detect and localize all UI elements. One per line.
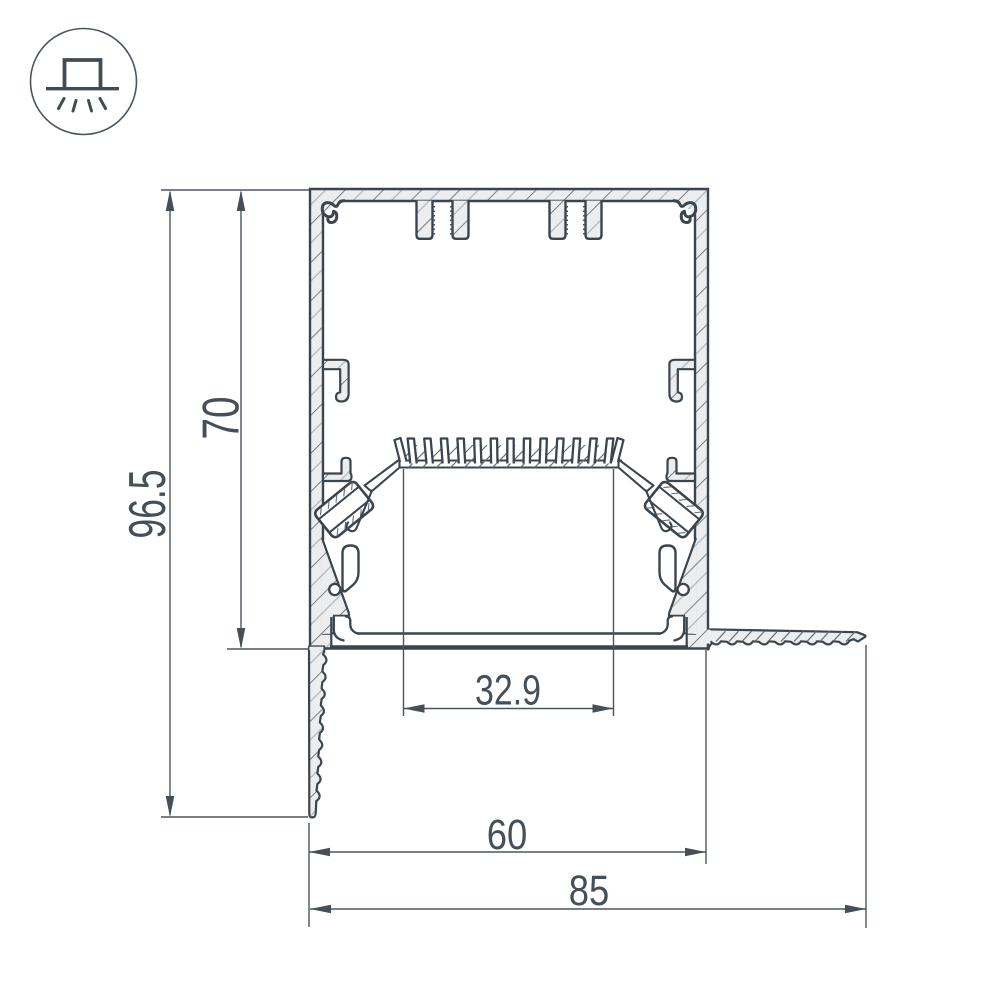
svg-text:70: 70 <box>193 397 251 440</box>
svg-text:60: 60 <box>487 811 528 859</box>
svg-text:85: 85 <box>569 867 610 915</box>
svg-text:32.9: 32.9 <box>475 667 541 715</box>
svg-text:96.5: 96.5 <box>119 470 177 539</box>
